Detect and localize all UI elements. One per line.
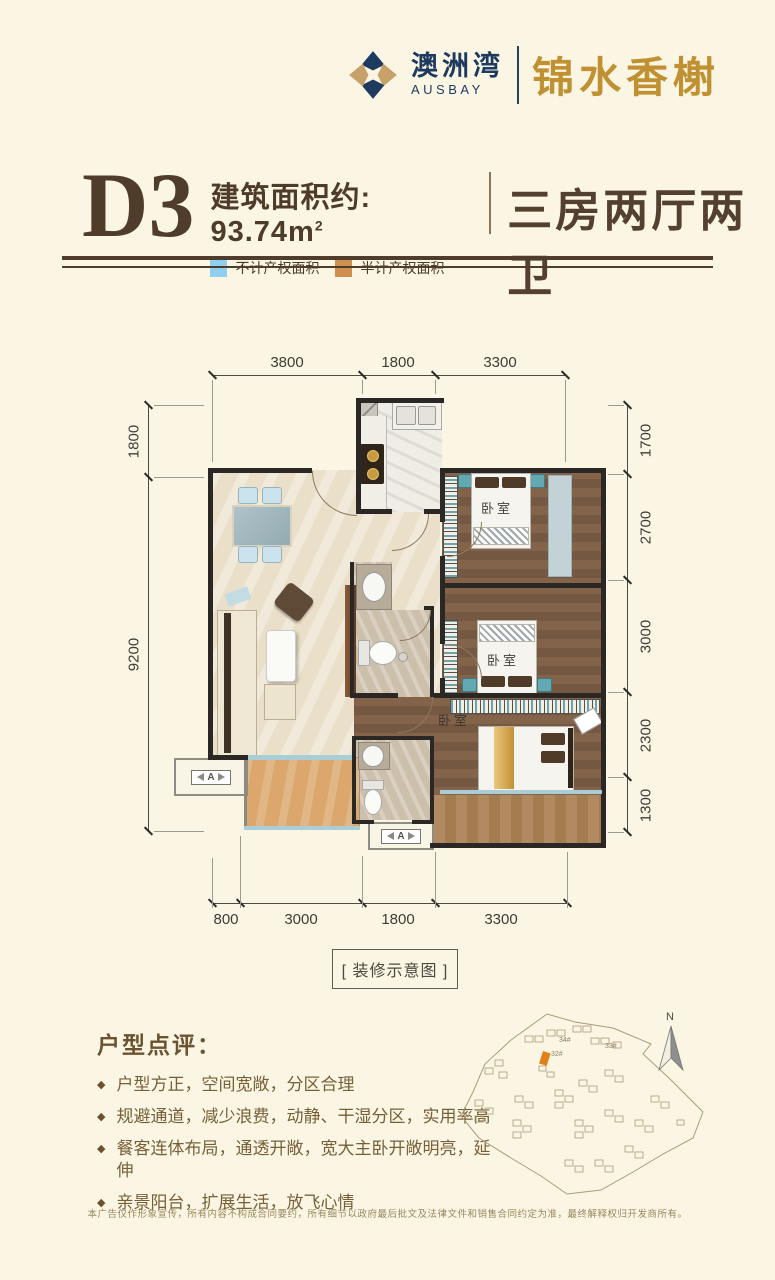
wall	[208, 755, 248, 760]
wall	[430, 736, 434, 824]
footer: 本广告仅作形象宣传，所有内容不构成合同要约，所有细节以政府最后批文及法律文件和销…	[60, 1206, 715, 1220]
window	[244, 826, 360, 830]
double-rule	[62, 256, 713, 268]
dining-chair	[262, 487, 282, 504]
triangle-left-icon	[197, 773, 204, 781]
dim-ext	[154, 477, 204, 478]
balcony-side-wall	[244, 757, 247, 827]
wall	[440, 556, 445, 644]
wall	[350, 693, 398, 698]
bed-runner	[494, 727, 514, 789]
master-balcony-floor	[434, 795, 604, 845]
brand-header: 澳洲湾 AUSBAY 锦水香榭	[0, 44, 720, 105]
building-label-33: 33#	[605, 1043, 617, 1050]
north-label: N	[666, 1011, 674, 1023]
project-name: 锦水香榭	[532, 44, 720, 105]
dim-ext	[608, 692, 624, 693]
pillow	[541, 733, 565, 745]
triangle-left-icon	[387, 832, 394, 840]
bedroom2-label: 卧室	[487, 650, 519, 669]
bath2-sink	[362, 745, 384, 767]
sofa-back	[224, 613, 231, 753]
brand-name-en: AUSBAY	[411, 82, 504, 97]
toilet-bowl	[369, 641, 397, 665]
north-arrow-right	[671, 1026, 683, 1070]
window	[440, 790, 602, 794]
dim-line-right	[627, 405, 628, 832]
dim-label: 1800	[368, 911, 428, 928]
dim-ext	[362, 856, 363, 908]
dim-line-top	[212, 375, 565, 376]
wall	[356, 509, 392, 514]
bath1-sink	[362, 572, 386, 602]
pillow	[475, 477, 499, 488]
review-text: 餐客连体布局，通透开敞，宽大主卧开敞明亮，延伸	[116, 1138, 497, 1182]
triangle-right-icon	[408, 832, 415, 840]
review-list: ◆户型方正，空间宽敞，分区合理 ◆规避通道，减少浪费，动静、干湿分区，实用率高 …	[97, 1074, 497, 1214]
pillow	[541, 751, 565, 763]
wall	[352, 736, 356, 824]
unit-code: D3	[82, 166, 194, 244]
dim-label: 3300	[470, 354, 530, 371]
dining-chair	[238, 487, 258, 504]
caption-text: [ 装修示意图 ]	[342, 957, 449, 981]
area-sup: 2	[315, 217, 324, 233]
dim-label: 2700	[638, 498, 655, 558]
ac-label: A	[397, 831, 404, 842]
wall	[434, 693, 606, 698]
review-item: ◆规避通道，减少浪费，动静、干湿分区，实用率高	[97, 1106, 497, 1128]
site-buildings	[475, 1026, 684, 1172]
dim-ext	[212, 380, 213, 462]
wall	[352, 820, 374, 824]
nightstand	[537, 678, 552, 692]
ac-marker: A	[381, 829, 420, 844]
wall	[208, 468, 312, 473]
armchair	[264, 684, 296, 720]
sink-basin	[418, 406, 436, 425]
dim-ext	[435, 380, 436, 394]
title-block: D3 建筑面积约: 93.74m2 不计产权面积 半计产权面积 三房两厅两卫	[82, 166, 775, 304]
layout-name: 三房两厅两卫	[507, 166, 775, 304]
wall	[352, 736, 434, 740]
wall	[430, 843, 606, 848]
burner	[367, 468, 379, 480]
wall	[440, 468, 606, 473]
dining-chair	[238, 546, 258, 563]
blanket	[473, 527, 529, 545]
dim-label: 1800	[368, 354, 428, 371]
building-label-34: 34#	[559, 1037, 571, 1044]
pillow	[508, 676, 532, 687]
pillow	[481, 676, 505, 687]
north-arrow: N	[659, 1011, 683, 1070]
ac-marker: A	[191, 770, 230, 785]
dim-ext	[435, 852, 436, 908]
coffee-table	[266, 630, 296, 682]
review-heading: 户型点评：	[97, 1026, 497, 1060]
brand-logo-icon	[348, 50, 398, 100]
dim-label: 1700	[638, 411, 655, 471]
review-section: 户型点评： ◆户型方正，空间宽敞，分区合理 ◆规避通道，减少浪费，动静、干湿分区…	[97, 1026, 497, 1224]
dim-label: 2300	[638, 706, 655, 766]
dim-ext	[608, 832, 624, 833]
highlighted-building	[539, 1051, 551, 1066]
triangle-right-icon	[218, 773, 225, 781]
ac-platform-1: A	[174, 758, 248, 796]
wall	[356, 398, 444, 403]
dim-ext	[565, 380, 566, 462]
bedroom3-label: 卧室	[438, 710, 470, 729]
dim-ext	[608, 580, 624, 581]
north-arrow-left	[659, 1026, 671, 1070]
burner	[367, 450, 379, 462]
diamond-bullet-icon: ◆	[97, 1074, 105, 1096]
floor-drain	[398, 652, 408, 662]
dim-label: 1800	[126, 412, 143, 472]
dim-label: 9200	[126, 625, 143, 685]
blanket	[479, 624, 535, 642]
wall	[430, 610, 434, 697]
dining-table	[232, 505, 292, 547]
dim-label: 3000	[638, 607, 655, 667]
site-map: 34# 32# 33# N	[455, 1000, 720, 1205]
bedroom1-label: 卧室	[481, 498, 513, 517]
sink-basin	[396, 406, 416, 425]
bedroom1-bay-window	[548, 475, 572, 577]
dim-ext	[212, 858, 213, 908]
wall	[208, 468, 213, 760]
dim-label: 3300	[471, 911, 531, 928]
brand-name-block: 澳洲湾 AUSBAY	[411, 52, 504, 97]
dim-label: 800	[196, 911, 256, 928]
diamond-bullet-icon: ◆	[97, 1106, 105, 1128]
title-divider	[489, 172, 491, 234]
caption-box: [ 装修示意图 ]	[332, 949, 458, 989]
review-text: 户型方正，空间宽敞，分区合理	[116, 1074, 354, 1096]
dim-ext	[240, 836, 241, 908]
disclaimer-text: 本广告仅作形象宣传，所有内容不构成合同要约，所有细节以政府最后批文及法律文件和销…	[87, 1209, 687, 1220]
dim-ext	[567, 852, 568, 908]
window	[248, 755, 352, 760]
balcony-floor	[244, 757, 360, 829]
bedroom3-wardrobe	[450, 699, 600, 714]
area-label: 建筑面积约: 93.74m	[210, 182, 371, 248]
dim-line-left	[148, 405, 149, 831]
ac-platform-2: A	[368, 822, 434, 850]
dim-ext	[154, 405, 204, 406]
wall	[412, 820, 434, 824]
diamond-bullet-icon: ◆	[97, 1138, 105, 1182]
review-item: ◆餐客连体布局，通透开敞，宽大主卧开敞明亮，延伸	[97, 1138, 497, 1182]
dim-ext	[608, 474, 624, 475]
nightstand	[462, 678, 477, 692]
brand-name-cn: 澳洲湾	[411, 52, 504, 80]
toilet-bowl	[364, 789, 382, 815]
building-label-32: 32#	[551, 1051, 563, 1058]
dining-chair	[262, 546, 282, 563]
poster-page: 澳洲湾 AUSBAY 锦水香榭 D3 建筑面积约: 93.74m2 不计产权面积…	[0, 0, 775, 1280]
dim-label: 3800	[257, 354, 317, 371]
dim-ext	[608, 405, 624, 406]
pillow	[502, 477, 526, 488]
dim-line-bottom	[212, 903, 567, 904]
dim-label: 1300	[638, 776, 655, 836]
sofa	[217, 610, 257, 758]
area-text: 建筑面积约: 93.74m2	[210, 174, 473, 249]
wall	[440, 468, 445, 522]
headboard	[568, 728, 573, 788]
dim-ext	[154, 831, 204, 832]
ac-label: A	[207, 772, 214, 783]
review-text: 规避通道，减少浪费，动静、干湿分区，实用率高	[116, 1106, 490, 1128]
nightstand	[530, 474, 545, 488]
wall	[445, 583, 601, 588]
wall	[350, 562, 354, 697]
dim-ext	[608, 777, 624, 778]
brand-divider	[517, 46, 519, 104]
dim-label: 3000	[271, 911, 331, 928]
dim-ext	[362, 380, 363, 394]
review-item: ◆户型方正，空间宽敞，分区合理	[97, 1074, 497, 1096]
